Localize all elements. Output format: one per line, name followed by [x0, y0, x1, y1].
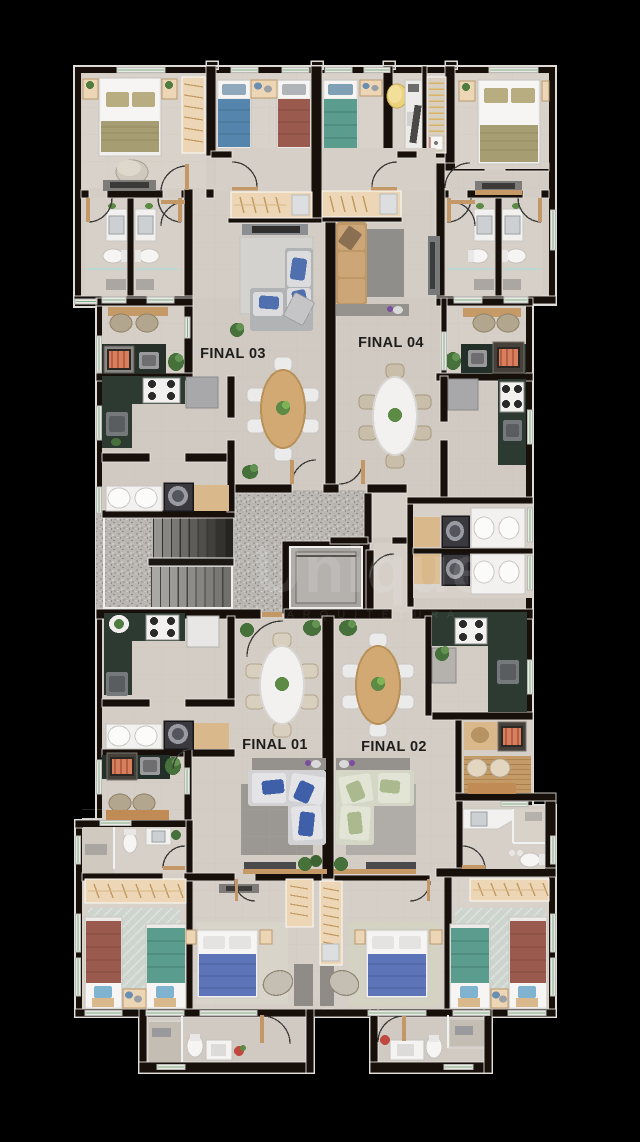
svg-text:Unique: Unique — [254, 532, 490, 606]
svg-text:FINAL 04: FINAL 04 — [358, 335, 424, 351]
svg-text:FINAL 02: FINAL 02 — [361, 739, 427, 755]
svg-text:FINAL 01: FINAL 01 — [242, 737, 308, 753]
svg-text:FINAL 03: FINAL 03 — [200, 346, 266, 362]
svg-text:A R Q U I T E T U R A: A R Q U I T E T U R A — [287, 609, 457, 621]
